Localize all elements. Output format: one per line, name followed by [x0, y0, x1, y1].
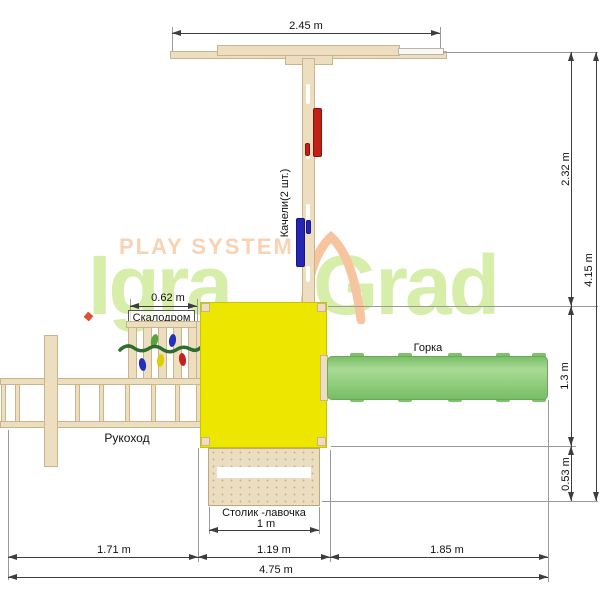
platform-roof: [200, 302, 327, 448]
dimension-label-mid-span: 1.19 m: [234, 544, 314, 556]
extension-line: [319, 507, 320, 534]
monkey-bar-rail-bottom: [0, 421, 204, 428]
dimension-mid-span: [198, 557, 330, 558]
swing-seat-blue: [296, 218, 305, 267]
dimension-label-total-width: 4.75 m: [236, 564, 316, 576]
dimension-label-beam-width: 2.45 m: [266, 20, 346, 32]
extension-line: [198, 448, 199, 562]
dimension-slide-zone-height: [571, 306, 572, 446]
swing-post-slot: [306, 204, 310, 220]
monkey-bar-crossbeam: [44, 335, 58, 467]
table-slot: [217, 467, 311, 478]
dimension-label-bench-zone: 0.53 m: [560, 439, 572, 509]
climbing-rope: [118, 341, 202, 355]
dimension-climb-width: [130, 306, 197, 307]
extension-line: [330, 450, 331, 562]
monkey-bars-label: Рукоход: [87, 431, 167, 445]
dimension-label-upper-height: 2.32 m: [560, 134, 572, 204]
dimension-total-width: [8, 577, 548, 578]
swing-label: Качели(2 шт.): [279, 148, 291, 258]
extension-line: [443, 52, 598, 53]
dimension-label-climb-width: 0.62 m: [128, 292, 208, 304]
platform-corner-post: [201, 437, 210, 446]
extension-line: [328, 306, 598, 307]
platform-corner-post: [317, 437, 326, 446]
extension-line: [331, 446, 576, 447]
dimension-label-right-span: 1.85 m: [407, 544, 487, 556]
swing-seat-red: [313, 108, 322, 157]
monkey-bar-rail-top: [0, 378, 204, 385]
extension-line: [322, 501, 598, 502]
platform-corner-post: [317, 303, 326, 312]
dimension-total-height: [596, 52, 597, 501]
dimension-right-span: [330, 557, 548, 558]
swing-seat-red-tab: [305, 143, 310, 156]
swing-post-slot: [306, 84, 310, 104]
playground-plan: PLAY SYSTEM Igra Grad 2.45 m Качели(2 шт…: [0, 0, 600, 600]
dimension-left-span: [8, 557, 198, 558]
dimension-label-table-width: 1 m: [236, 518, 296, 530]
swing-post-slot: [306, 266, 310, 282]
slide-chute: [327, 356, 548, 400]
platform-corner-post: [201, 303, 210, 312]
dimension-label-left-span: 1.71 m: [74, 544, 154, 556]
extension-line: [548, 400, 549, 582]
swing-beam-board: [398, 48, 444, 55]
swing-seat-blue-tab: [306, 220, 311, 234]
dimension-table-width: [209, 530, 319, 531]
dimension-beam-width: [172, 33, 440, 34]
dimension-label-total-height: 4.15 m: [583, 235, 595, 305]
dimension-label-slide-zone: 1.3 m: [559, 341, 571, 411]
